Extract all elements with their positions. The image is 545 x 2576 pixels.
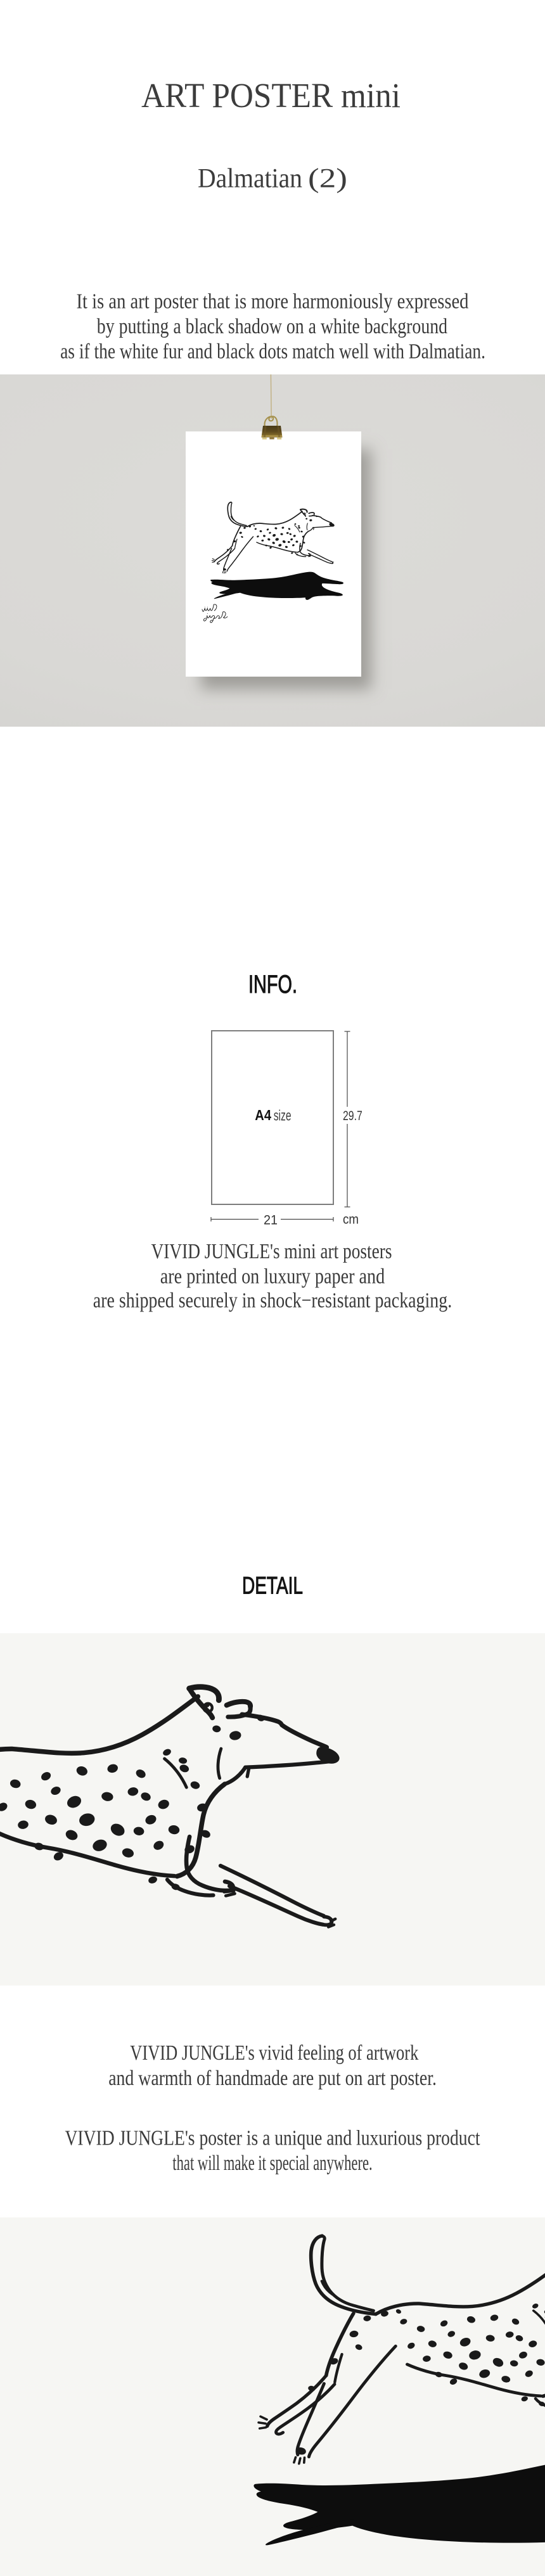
svg-text:INFO.: INFO. — [248, 971, 297, 998]
svg-text:21: 21 — [264, 1213, 278, 1227]
svg-text:(2): (2) — [308, 163, 347, 193]
svg-text:cm: cm — [343, 1213, 359, 1227]
svg-text:that will make it special anyw: that will make it special anywhere. — [172, 2152, 372, 2175]
svg-text:DETAIL: DETAIL — [242, 1573, 303, 1600]
svg-text:Dalmatian: Dalmatian — [198, 163, 302, 193]
svg-text:VIVID JUNGLE's vivid feeling o: VIVID JUNGLE's vivid feeling of artwork — [130, 2041, 418, 2065]
svg-text:are shipped securely in shock−: are shipped securely in shock−resistant … — [93, 1289, 452, 1313]
svg-text:and warmth of handmade are put: and warmth of handmade are put on art po… — [108, 2067, 437, 2090]
svg-text:by putting a black shadow on a: by putting a black shadow on a white bac… — [97, 315, 447, 338]
svg-text:size: size — [274, 1107, 292, 1123]
svg-text:as if the white fur and black: as if the white fur and black dots match… — [60, 340, 485, 364]
svg-text:ART POSTER mini: ART POSTER mini — [141, 76, 401, 115]
svg-text:A4: A4 — [255, 1107, 271, 1123]
svg-text:are printed on luxury paper an: are printed on luxury paper and — [160, 1265, 385, 1288]
svg-text:It is an art poster that is mo: It is an art poster that is more harmoni… — [77, 290, 469, 314]
svg-text:VIVID JUNGLE's mini art poster: VIVID JUNGLE's mini art posters — [151, 1240, 392, 1263]
svg-text:VIVID JUNGLE's poster is a uni: VIVID JUNGLE's poster is a unique and lu… — [65, 2127, 480, 2150]
svg-text:29.7: 29.7 — [343, 1109, 362, 1123]
